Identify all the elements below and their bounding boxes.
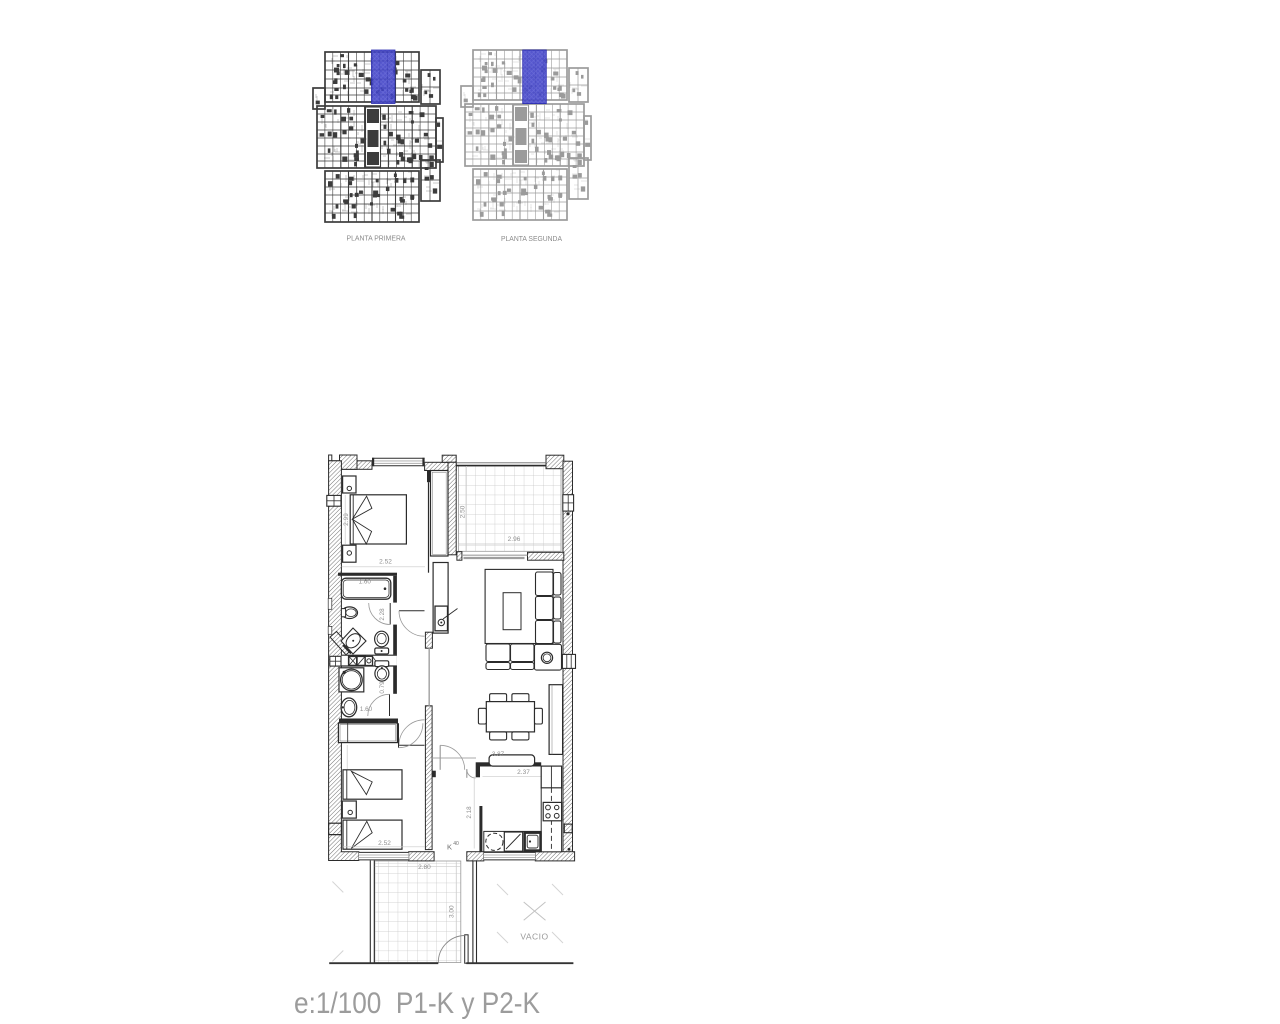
svg-text:2.99: 2.99 <box>343 513 350 526</box>
svg-text:2.50: 2.50 <box>459 505 466 518</box>
svg-text:2.80: 2.80 <box>418 864 431 871</box>
svg-text:1.60: 1.60 <box>360 706 373 713</box>
svg-text:VACIO: VACIO <box>520 932 548 942</box>
svg-text:40: 40 <box>453 841 459 847</box>
svg-text:3.00: 3.00 <box>449 905 456 918</box>
svg-text:2.52: 2.52 <box>378 840 391 847</box>
svg-text:2.37: 2.37 <box>517 769 530 776</box>
svg-text:2.18: 2.18 <box>466 806 473 819</box>
svg-text:K: K <box>447 843 452 852</box>
svg-text:PLANTA PRIMERA: PLANTA PRIMERA <box>347 234 406 243</box>
svg-text:e:1/100 P1-K y P2-K: e:1/100 P1-K y P2-K <box>294 987 540 1020</box>
svg-text:2.28: 2.28 <box>379 608 386 621</box>
svg-text:2.52: 2.52 <box>379 559 392 566</box>
svg-text:1.60: 1.60 <box>359 579 372 586</box>
svg-text:3.87: 3.87 <box>492 751 505 758</box>
svg-text:2.96: 2.96 <box>508 536 521 543</box>
svg-text:0.79: 0.79 <box>379 681 386 694</box>
svg-text:PLANTA SEGUNDA: PLANTA SEGUNDA <box>501 234 562 243</box>
